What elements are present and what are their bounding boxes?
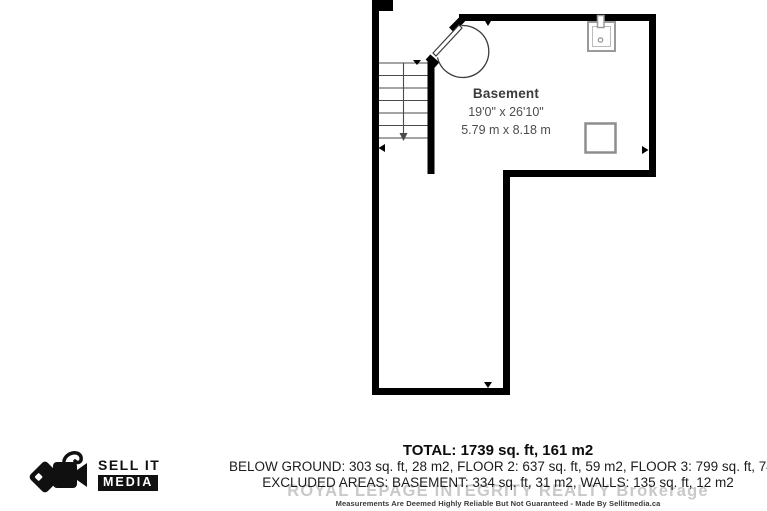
stairs [379,63,428,138]
room-dimensions-metric: 5.79 m x 8.18 m [426,123,586,139]
room-label-block: Basement 19'0" x 26'10" 5.79 m x 8.18 m [426,86,586,138]
logo-sell-it: SELL IT [98,458,160,473]
room-name: Basement [426,86,586,103]
utility-square-icon [586,124,616,153]
marker-top-icon [485,21,491,26]
marker-left-icon [379,144,386,152]
room-dimensions-imperial: 19'0" x 26'10" [426,105,586,121]
logo-media-badge: MEDIA [98,475,158,491]
marker-right-icon [642,146,649,154]
camera-tag-logo-icon [28,450,90,498]
disclaimer-text: Measurements Are Deemed Highly Reliable … [229,499,767,508]
summary-block: ROYAL LEPAGE INTEGRITY REALTY Brokerage … [229,442,767,508]
logo-text: SELL IT MEDIA [98,458,160,491]
total-area-line: TOTAL: 1739 sq. ft, 161 m2 [229,442,767,459]
excluded-areas-line: EXCLUDED AREAS: BASEMENT: 334 sq. ft, 31… [229,475,767,491]
sellit-media-logo: SELL IT MEDIA [28,450,160,498]
floorplan-page: Basement 19'0" x 26'10" 5.79 m x 8.18 m … [0,0,767,511]
wall-top-left-stub [372,0,393,11]
marker-bottom-icon [484,382,492,388]
floor-plan-canvas [0,0,767,511]
wall-markers [379,21,649,388]
door-swing-icon [433,25,489,77]
stairs-down-arrow-icon [400,133,408,141]
floor-areas-line: BELOW GROUND: 303 sq. ft, 28 m2, FLOOR 2… [229,459,767,475]
walls [372,0,656,395]
